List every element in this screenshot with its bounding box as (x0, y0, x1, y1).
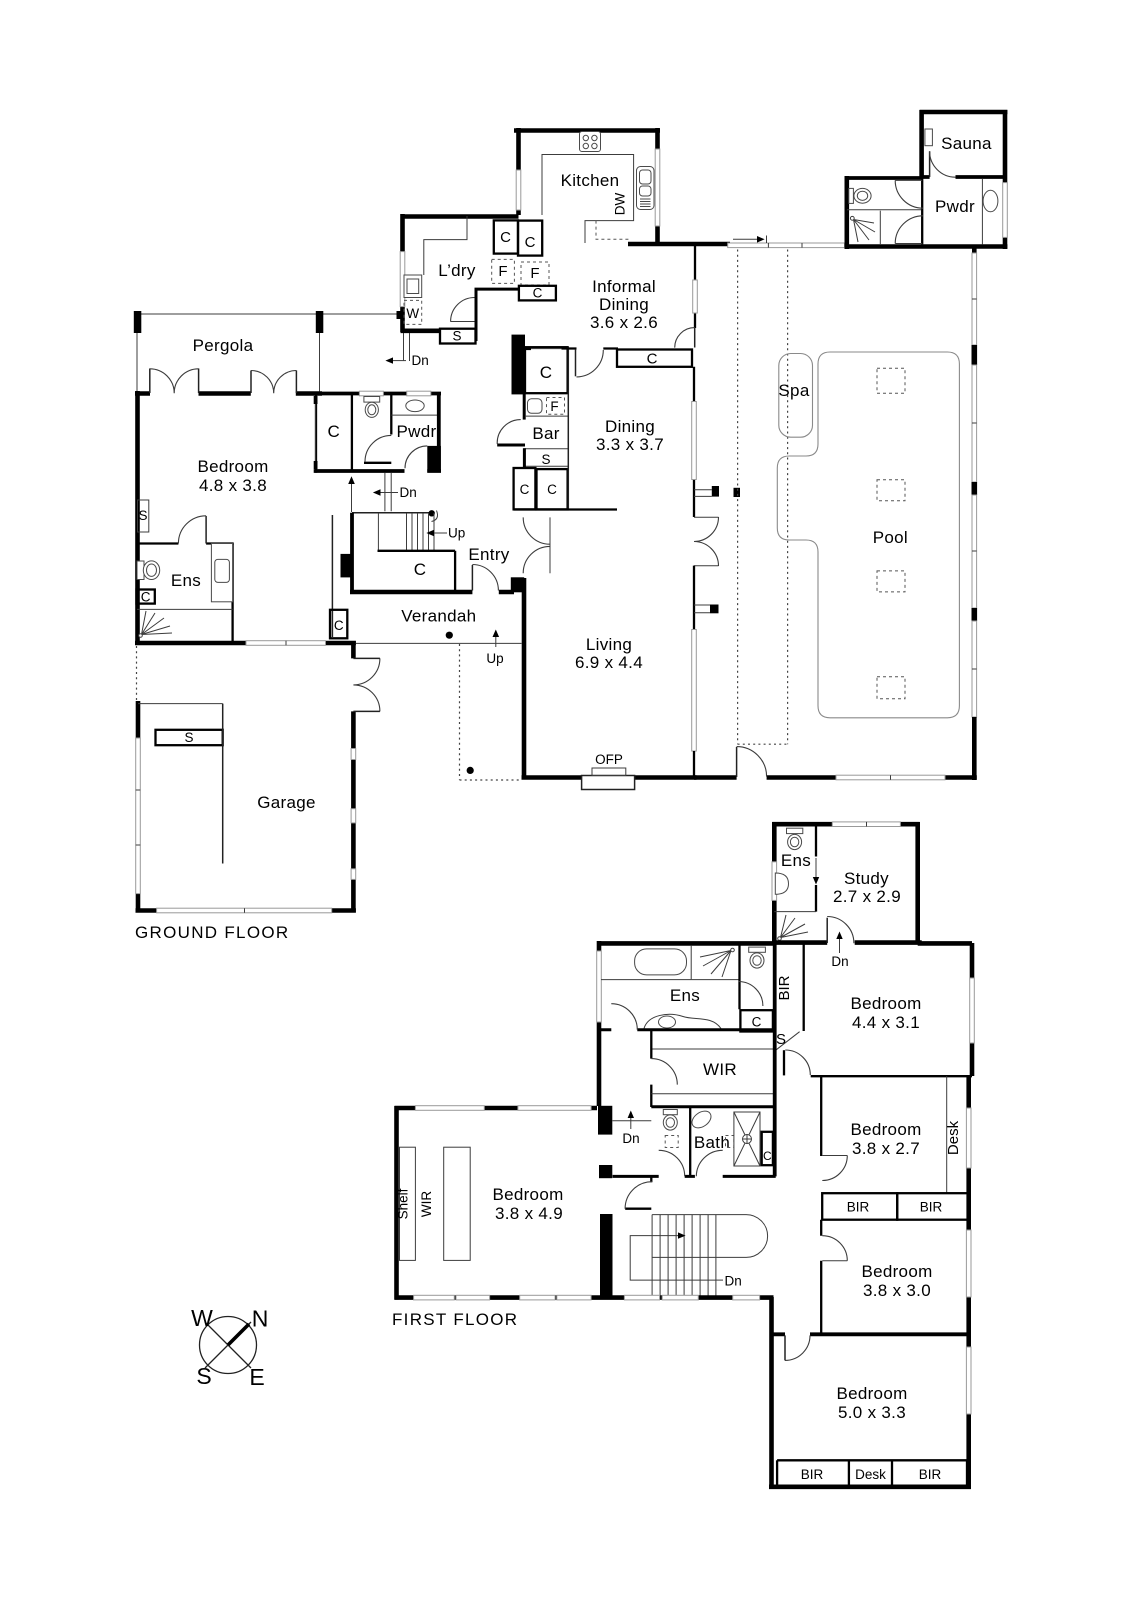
svg-text:Bedroom: Bedroom (850, 994, 921, 1013)
svg-text:Kitchen: Kitchen (561, 171, 620, 190)
svg-text:Shelf: Shelf (396, 1188, 411, 1219)
svg-text:F: F (550, 399, 558, 414)
svg-text:BIR: BIR (776, 975, 793, 1000)
svg-text:GROUND FLOOR: GROUND FLOOR (135, 923, 289, 942)
svg-text:W: W (406, 306, 419, 321)
svg-text:Pergola: Pergola (193, 336, 254, 355)
svg-text:WIR: WIR (419, 1191, 434, 1217)
svg-text:E: E (249, 1364, 264, 1390)
svg-text:3.8 x 3.0: 3.8 x 3.0 (863, 1281, 931, 1300)
svg-text:W: W (191, 1305, 213, 1331)
svg-text:WIR: WIR (703, 1060, 737, 1079)
svg-text:S: S (541, 452, 550, 467)
svg-text:Desk: Desk (945, 1120, 962, 1155)
svg-text:Entry: Entry (468, 545, 509, 564)
svg-text:3.8 x 2.7: 3.8 x 2.7 (852, 1139, 920, 1158)
svg-text:C: C (752, 1015, 762, 1030)
svg-text:Pwdr: Pwdr (397, 422, 437, 441)
svg-text:Dining: Dining (599, 295, 649, 314)
svg-text:Dn: Dn (400, 485, 417, 500)
svg-text:Living: Living (586, 635, 632, 654)
svg-text:Desk: Desk (855, 1467, 886, 1482)
svg-text:Up: Up (486, 651, 503, 666)
svg-text:Ens: Ens (670, 986, 700, 1005)
svg-text:F: F (530, 265, 539, 282)
svg-text:Bedroom: Bedroom (850, 1120, 921, 1139)
svg-text:S: S (776, 1031, 786, 1048)
svg-text:F: F (498, 263, 507, 280)
svg-text:5.0 x 3.3: 5.0 x 3.3 (838, 1403, 906, 1422)
svg-text:Pwdr: Pwdr (935, 197, 975, 216)
svg-text:Pool: Pool (873, 528, 908, 547)
svg-text:Dn: Dn (831, 954, 848, 969)
svg-text:Bar: Bar (532, 424, 559, 443)
svg-text:L’dry: L’dry (438, 261, 476, 280)
svg-text:Dn: Dn (622, 1131, 639, 1146)
svg-text:C: C (547, 482, 557, 497)
svg-text:C: C (500, 229, 511, 246)
svg-text:C: C (525, 234, 536, 251)
svg-text:3.6 x 2.6: 3.6 x 2.6 (590, 313, 658, 332)
svg-text:C: C (520, 482, 530, 497)
svg-text:Bedroom: Bedroom (492, 1185, 563, 1204)
svg-text:BIR: BIR (920, 1200, 943, 1215)
svg-text:Ens: Ens (781, 851, 811, 870)
svg-text:C: C (763, 1149, 772, 1163)
svg-text:DW: DW (613, 193, 628, 216)
svg-text:C: C (141, 590, 151, 605)
svg-text:BIR: BIR (801, 1467, 824, 1482)
svg-text:Informal: Informal (592, 277, 656, 296)
svg-text:2.7 x 2.9: 2.7 x 2.9 (833, 887, 901, 906)
svg-text:Bedroom: Bedroom (861, 1262, 932, 1281)
svg-text:Bedroom: Bedroom (836, 1384, 907, 1403)
svg-text:Sauna: Sauna (941, 134, 992, 153)
svg-text:Dn: Dn (412, 353, 429, 368)
svg-text:Verandah: Verandah (401, 607, 476, 626)
svg-text:C: C (533, 286, 543, 301)
svg-text:3.8 x 4.9: 3.8 x 4.9 (495, 1204, 563, 1223)
svg-text:Bath: Bath (694, 1133, 730, 1152)
svg-text:Up: Up (448, 526, 465, 541)
svg-text:OFP: OFP (595, 752, 623, 767)
svg-text:6.9 x 4.4: 6.9 x 4.4 (575, 653, 643, 672)
svg-text:C: C (414, 560, 427, 579)
svg-text:FIRST FLOOR: FIRST FLOOR (392, 1310, 518, 1329)
svg-text:4.8 x 3.8: 4.8 x 3.8 (199, 476, 267, 495)
svg-text:Garage: Garage (257, 793, 316, 812)
svg-text:S: S (452, 329, 461, 344)
svg-text:C: C (540, 363, 553, 382)
svg-text:S: S (196, 1363, 211, 1389)
svg-text:S: S (184, 730, 193, 745)
svg-text:Study: Study (844, 869, 889, 888)
svg-text:C: C (647, 351, 658, 368)
svg-text:BIR: BIR (847, 1200, 870, 1215)
svg-text:3.3 x 3.7: 3.3 x 3.7 (596, 435, 664, 454)
svg-text:N: N (252, 1306, 269, 1332)
svg-text:Bedroom: Bedroom (197, 457, 268, 476)
svg-text:S: S (138, 508, 147, 523)
svg-text:C: C (334, 618, 344, 633)
svg-text:Dining: Dining (605, 417, 655, 436)
svg-text:BIR: BIR (919, 1467, 942, 1482)
svg-text:C: C (328, 422, 341, 441)
svg-text:Spa: Spa (778, 381, 809, 400)
svg-text:4.4 x 3.1: 4.4 x 3.1 (852, 1013, 920, 1032)
svg-text:Dn: Dn (725, 1274, 742, 1289)
svg-text:Ens: Ens (171, 571, 201, 590)
